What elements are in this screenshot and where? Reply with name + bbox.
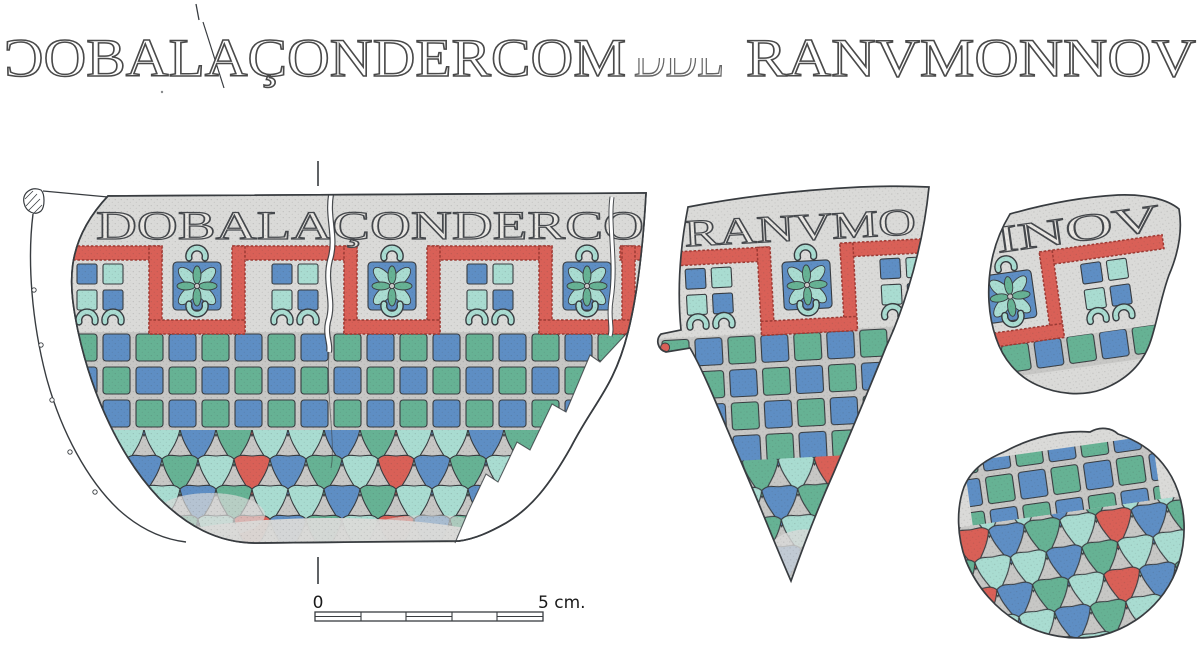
rim-connector-line: [43, 191, 108, 197]
fragment-bottom-right: [920, 403, 1200, 645]
unrolled-inscription: ƆOBALAÇONDERCOM DDL RANVMONNOV: [4, 4, 1196, 93]
inscription-part-1: ƆOBALAÇONDERCOM: [4, 28, 626, 88]
inscription-part-2: RANVMONNOV: [746, 28, 1196, 88]
fragment-middle: RANVMO: [609, 161, 982, 609]
banner-tick-mark: [196, 4, 199, 20]
inscription-damaged-letters: DDL: [634, 28, 724, 88]
fragment-top-right: INOV: [946, 165, 1200, 426]
scale-bar-divisions: [315, 612, 543, 621]
scale-bar-start-label: 0: [313, 593, 324, 613]
scale-bar-end-label: 5 cm.: [538, 593, 586, 613]
main-vessel: DOBALAÇONDERCO: [38, 185, 744, 578]
archaeological-figure: ƆOBALAÇONDERCOM DDL RANVMONNOV: [0, 0, 1200, 645]
scale-bar: 0 5 cm.: [313, 593, 586, 621]
banner-speck: [161, 91, 163, 93]
figure-canvas: ƆOBALAÇONDERCOM DDL RANVMONNOV: [0, 0, 1200, 645]
stipple-texture: [50, 185, 670, 555]
